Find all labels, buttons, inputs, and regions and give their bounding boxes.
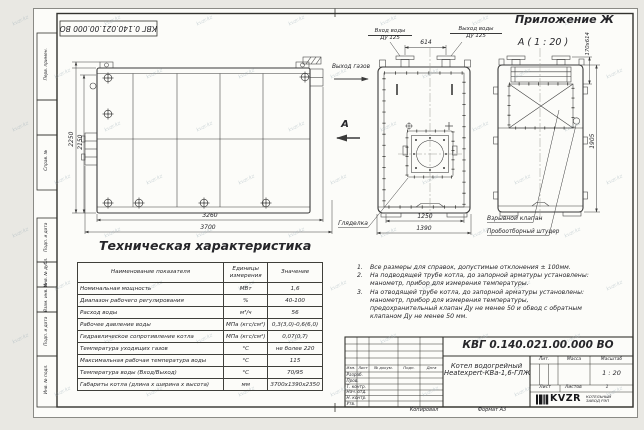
top-stamp-code: КВГ 0.140.021.00.000 ВО	[60, 21, 157, 36]
drawing-sheet: КВГ 0.140.021.00.000 ВО Приложение Ж А (…	[0, 0, 644, 430]
cell: МПа (кгс/см²)	[224, 319, 268, 331]
cell: МВт	[224, 283, 268, 295]
cell: Максимальная рабочая температура воды	[78, 355, 224, 367]
cell: 40-100	[268, 295, 322, 307]
row-prov: Пров.	[347, 379, 359, 383]
dim-3260: 3260	[188, 213, 232, 219]
cell: Гидравлическое сопротивление котла	[78, 331, 224, 343]
note-number: 1.	[357, 264, 370, 272]
cell: Рабочее давление воды	[78, 319, 224, 331]
notes-list: 1. Все размеры для справок, допустимые о…	[357, 264, 625, 321]
cell: %	[224, 295, 268, 307]
tech-row: Расход водым³/ч56	[78, 307, 323, 319]
tech-table-title: Техническая характеристика	[99, 239, 289, 252]
mass-label: Масса	[558, 358, 590, 363]
water-inlet-label: Вход водыДу 125	[368, 29, 412, 42]
note-number: 2.	[357, 272, 370, 288]
tech-row: Температура уходящих газов°Сне более 220	[78, 343, 323, 355]
dim-614: 614	[412, 40, 440, 46]
cell: °С	[224, 355, 268, 367]
sight-glass-label: Гляделка	[336, 221, 370, 227]
sheets-value: 1	[602, 386, 612, 391]
water-outlet-label: Выход водыДу 125	[450, 27, 502, 40]
note-item: 2. На подводящей трубе котла, до запорно…	[357, 272, 625, 288]
row-utv: Утв.	[347, 402, 356, 406]
dim-2150: 2150	[78, 122, 84, 162]
cell: 3700х1390х2350	[268, 379, 322, 391]
cell: 1,6	[268, 283, 322, 295]
tech-header-units: Единицы измерения	[224, 263, 268, 283]
cell: не более 220	[268, 343, 322, 355]
dim-2250: 2250	[69, 119, 75, 159]
tech-row: Диапазон рабочего регулирования%40-100	[78, 295, 323, 307]
note-text: На отводящей трубе котла, до запорной ар…	[370, 289, 597, 322]
cell: 70/95	[268, 367, 322, 379]
section-a-mark: А	[337, 120, 353, 131]
note-text: На подводящей трубе котла, до запорной а…	[370, 272, 597, 288]
margin-label-podp-data-2: Подп. и дата	[45, 309, 50, 353]
col-data: Дата	[420, 366, 443, 370]
dim-1905: 1905	[590, 121, 596, 161]
view-a-title: А ( 1 : 20 )	[503, 38, 583, 48]
cell: Габариты котла (длина х ширина х высота)	[78, 379, 224, 391]
explosion-valve-label: Взрывной клапан	[487, 216, 542, 222]
scale-value: 1 : 20	[590, 370, 633, 377]
col-podp: Подп.	[398, 366, 420, 370]
cell: 0,3(3,0)-0,6(6,0)	[268, 319, 322, 331]
gas-outlet-label: Выход газов	[328, 64, 374, 70]
dim-1250: 1250	[408, 214, 442, 220]
tech-table: Наименование показателя Единицы измерени…	[77, 262, 323, 391]
cell: МПа (кгс/см²)	[224, 331, 268, 343]
company-name: КОТЕЛЬНЫЙЗАВОД РЭП	[586, 395, 611, 403]
scale-label: Масштаб	[590, 358, 633, 363]
note-item: 1. Все размеры для справок, допустимые о…	[357, 264, 625, 272]
copied-label: Копировал	[399, 408, 449, 413]
dim-1390: 1390	[407, 226, 441, 232]
format-label: Формат А3	[467, 408, 517, 413]
title-block-doc-number: КВГ 0.140.021.00.000 ВО	[448, 340, 628, 351]
cell: °С	[224, 343, 268, 355]
cell: Номинальная мощность	[78, 283, 224, 295]
cell: Температура уходящих газов	[78, 343, 224, 355]
cell: Диапазон рабочего регулирования	[78, 295, 224, 307]
col-docnum: № докум.	[369, 366, 398, 370]
sheet-label: Лист	[530, 386, 560, 391]
row-razrab: Разраб.	[347, 373, 363, 377]
cell: Расход воды	[78, 307, 224, 319]
note-text: Все размеры для справок, допустимые откл…	[370, 264, 597, 272]
tech-row: Температура воды (Вход/Выход)°С70/95	[78, 367, 323, 379]
tech-row: Номинальная мощностьМВт1,6	[78, 283, 323, 295]
tech-row: Рабочее давление водыМПа (кгс/см²)0,3(3,…	[78, 319, 323, 331]
tech-row: Гидравлическое сопротивление котлаМПа (к…	[78, 331, 323, 343]
cell: °С	[224, 367, 268, 379]
note-number: 3.	[357, 289, 370, 322]
margin-label-sprav-no: Справ. №	[45, 133, 50, 187]
col-izm: Изм.	[345, 366, 357, 370]
kvzr-logo-icon	[536, 395, 548, 405]
sampling-fitting-label: Пробоотборный штуцер	[487, 229, 559, 235]
row-n-kontr: Н. контр.	[347, 396, 367, 400]
cell: мм	[224, 379, 268, 391]
sheets-label: Листов	[565, 386, 582, 391]
tech-header-name: Наименование показателя	[78, 263, 224, 283]
margin-label-perv-primen: Перв. примен.	[45, 31, 50, 97]
lit-label: Лит.	[530, 358, 558, 363]
dim-3700: 3700	[186, 225, 230, 231]
row-t-kontr: Т. контр.	[347, 385, 366, 389]
cell: 115	[268, 355, 322, 367]
tech-header-value: Значение	[268, 263, 322, 283]
tech-row: Габариты котла (длина х ширина х высота)…	[78, 379, 323, 391]
cell: м³/ч	[224, 307, 268, 319]
tech-table-header-row: Наименование показателя Единицы измерени…	[78, 263, 323, 283]
cell: 0,07(0,7)	[268, 331, 322, 343]
col-list: Лист	[357, 366, 369, 370]
cell: 56	[268, 307, 322, 319]
dim-170x614: 170х614	[586, 24, 592, 64]
note-item: 3. На отводящей трубе котла, до запорной…	[357, 289, 625, 322]
title-block-product-name: Котел водогрейныйHeatexpert-КВа-1,6-ГЛЖ	[444, 363, 529, 377]
kvzr-logo-text: KVZR	[550, 394, 581, 404]
cell: Температура воды (Вход/Выход)	[78, 367, 224, 379]
tech-row: Максимальная рабочая температура воды°С1…	[78, 355, 323, 367]
margin-label-inv-podl: Инв. № подл.	[45, 355, 50, 403]
